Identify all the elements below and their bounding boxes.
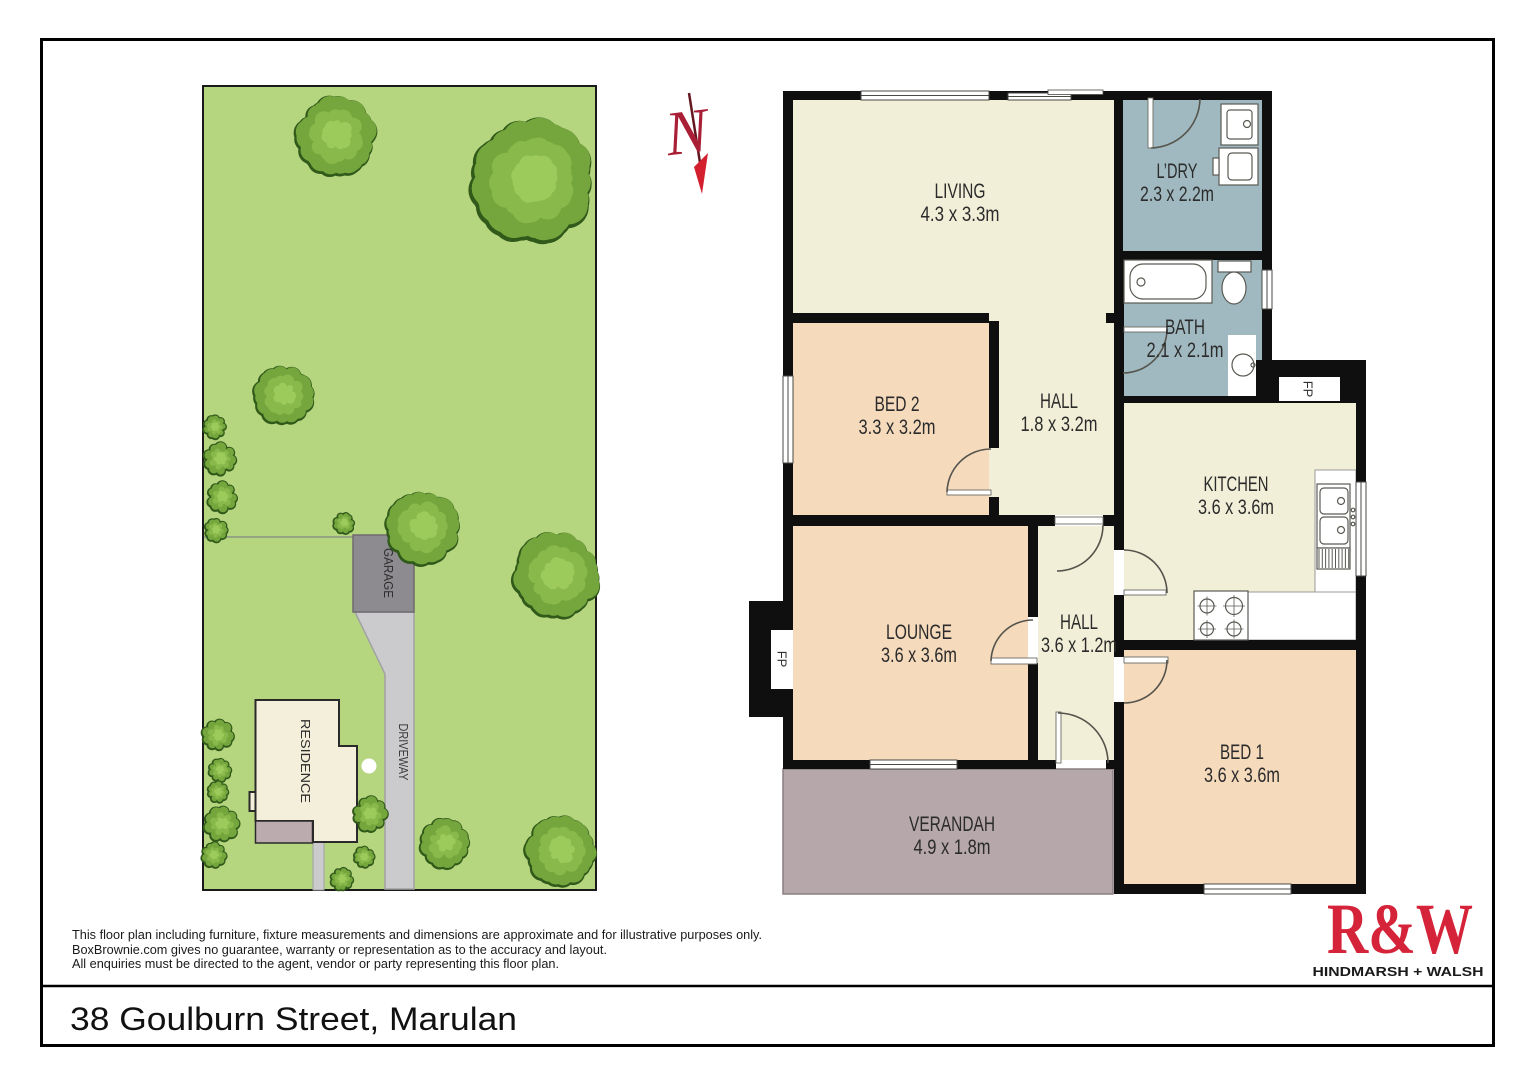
svg-text:2.1 x 2.1m: 2.1 x 2.1m — [1147, 339, 1224, 362]
svg-text:KITCHEN: KITCHEN — [1204, 473, 1269, 496]
svg-text:R&W: R&W — [1327, 889, 1473, 969]
svg-text:HALL: HALL — [1040, 390, 1078, 413]
svg-text:LOUNGE: LOUNGE — [886, 621, 952, 644]
svg-text:4.3 x 3.3m: 4.3 x 3.3m — [921, 203, 1000, 226]
svg-text:HINDMARSH + WALSH: HINDMARSH + WALSH — [1313, 965, 1484, 979]
svg-text:3.6 x 3.6m: 3.6 x 3.6m — [881, 644, 957, 667]
svg-text:This floor plan including furn: This floor plan including furniture, fix… — [72, 927, 762, 942]
svg-text:2.3 x 2.2m: 2.3 x 2.2m — [1140, 183, 1214, 206]
svg-text:BATH: BATH — [1165, 316, 1205, 339]
svg-text:HALL: HALL — [1060, 611, 1098, 634]
svg-text:All enquiries must be directed: All enquiries must be directed to the ag… — [72, 956, 559, 971]
svg-text:1.8 x 3.2m: 1.8 x 3.2m — [1021, 413, 1098, 436]
svg-text:38 Goulburn Street, Marulan: 38 Goulburn Street, Marulan — [70, 1001, 517, 1037]
svg-text:GARAGE: GARAGE — [381, 548, 396, 598]
svg-text:FP: FP — [1301, 381, 1316, 398]
svg-text:VERANDAH: VERANDAH — [909, 813, 995, 836]
svg-text:3.6 x 3.6m: 3.6 x 3.6m — [1204, 764, 1280, 787]
svg-text:BED 2: BED 2 — [875, 393, 920, 416]
svg-text:3.3 x 3.2m: 3.3 x 3.2m — [859, 416, 936, 439]
svg-text:4.9 x 1.8m: 4.9 x 1.8m — [914, 836, 991, 859]
svg-text:3.6 x 1.2m: 3.6 x 1.2m — [1041, 634, 1117, 657]
svg-text:L’DRY: L’DRY — [1157, 160, 1198, 183]
svg-text:FP: FP — [775, 651, 790, 668]
svg-text:RESIDENCE: RESIDENCE — [298, 719, 313, 803]
svg-text:BED 1: BED 1 — [1220, 741, 1264, 764]
svg-text:BoxBrownie.com gives no guaran: BoxBrownie.com gives no guarantee, warra… — [72, 942, 607, 957]
svg-text:DRIVEWAY: DRIVEWAY — [396, 724, 410, 782]
svg-text:LIVING: LIVING — [935, 180, 986, 203]
svg-text:3.6 x 3.6m: 3.6 x 3.6m — [1198, 496, 1274, 519]
